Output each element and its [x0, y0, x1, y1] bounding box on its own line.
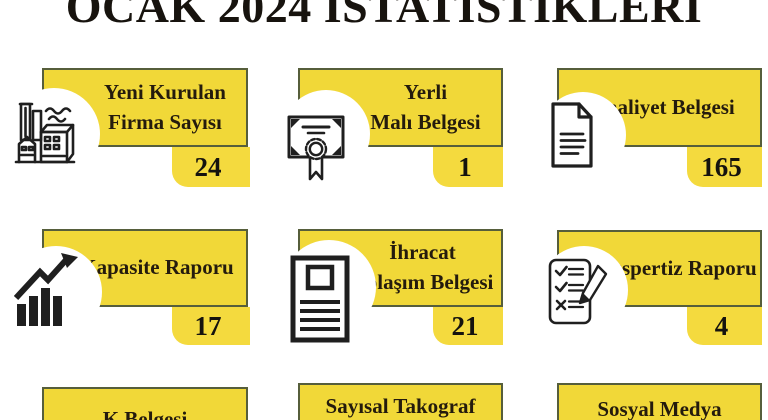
stat-card-faaliyet-belgesi: Faaliyet Belgesi 165	[540, 66, 765, 187]
stat-card-kapasite-raporu: Kapasite Raporu 17	[8, 227, 250, 347]
stat-card-label: Firma Sayısı	[108, 108, 222, 138]
stat-card-yeni-kurulan-firma-sayisi: Yeni Kurulan Firma Sayısı 24	[8, 66, 250, 187]
stat-card-value-tab: 17	[172, 307, 250, 345]
stat-card-label: Malı Belgesi	[370, 108, 480, 138]
bar-chart-growth-icon	[14, 252, 86, 328]
certificate-icon	[286, 112, 346, 186]
stat-card-sosyal-medya: Sosyal Medya	[540, 383, 765, 420]
stat-card-ihracat-dolasim-belgesi: İhracat Dolaşım Belgesi 21	[282, 227, 505, 347]
stat-card-value-tab: 165	[687, 147, 762, 187]
stat-card-yerli-mali-belgesi: Yerli Malı Belgesi 1	[282, 66, 505, 187]
stat-card-value-tab: 24	[172, 147, 250, 187]
stat-card-value-tab: 1	[433, 147, 503, 187]
stat-card-panel: Sayısal Takograf	[298, 383, 503, 420]
stat-card-value: 165	[701, 152, 748, 183]
page-title: OCAK 2024 İSTATİSTİKLERİ	[0, 0, 768, 30]
stat-card-ekspertiz-raporu: Ekspertiz Raporu 4	[540, 227, 765, 347]
stat-card-label: K Belgesi	[103, 405, 188, 420]
stat-card-value: 4	[715, 311, 735, 342]
stat-card-k-belgesi: K Belgesi	[8, 383, 250, 420]
stat-card-label: Yeni Kurulan	[104, 78, 226, 108]
stat-card-panel: Sosyal Medya	[557, 383, 762, 420]
stat-card-label: Sosyal Medya	[597, 395, 721, 420]
factory-icon	[13, 98, 79, 168]
stat-card-value-tab: 21	[433, 307, 503, 345]
stat-card-label: Sayısal Takograf	[326, 392, 476, 420]
document-photo-icon	[288, 254, 352, 344]
stat-card-sayisal-takograf: Sayısal Takograf	[282, 383, 505, 420]
stat-card-value: 24	[195, 152, 228, 183]
stat-card-label: Yerli	[404, 78, 447, 108]
stat-card-label: Kapasite Raporu	[80, 253, 233, 283]
stat-card-value: 1	[458, 152, 478, 183]
checklist-pencil-icon	[546, 256, 608, 328]
stat-card-value: 17	[195, 311, 228, 342]
stat-card-label: İhracat	[389, 238, 456, 268]
document-icon	[546, 100, 598, 170]
infographic-page: OCAK 2024 İSTATİSTİKLERİ Yeni Kurulan Fi…	[0, 0, 768, 420]
stat-card-value-tab: 4	[687, 307, 762, 345]
stat-card-panel: K Belgesi	[42, 387, 248, 420]
stat-card-value: 21	[452, 311, 485, 342]
